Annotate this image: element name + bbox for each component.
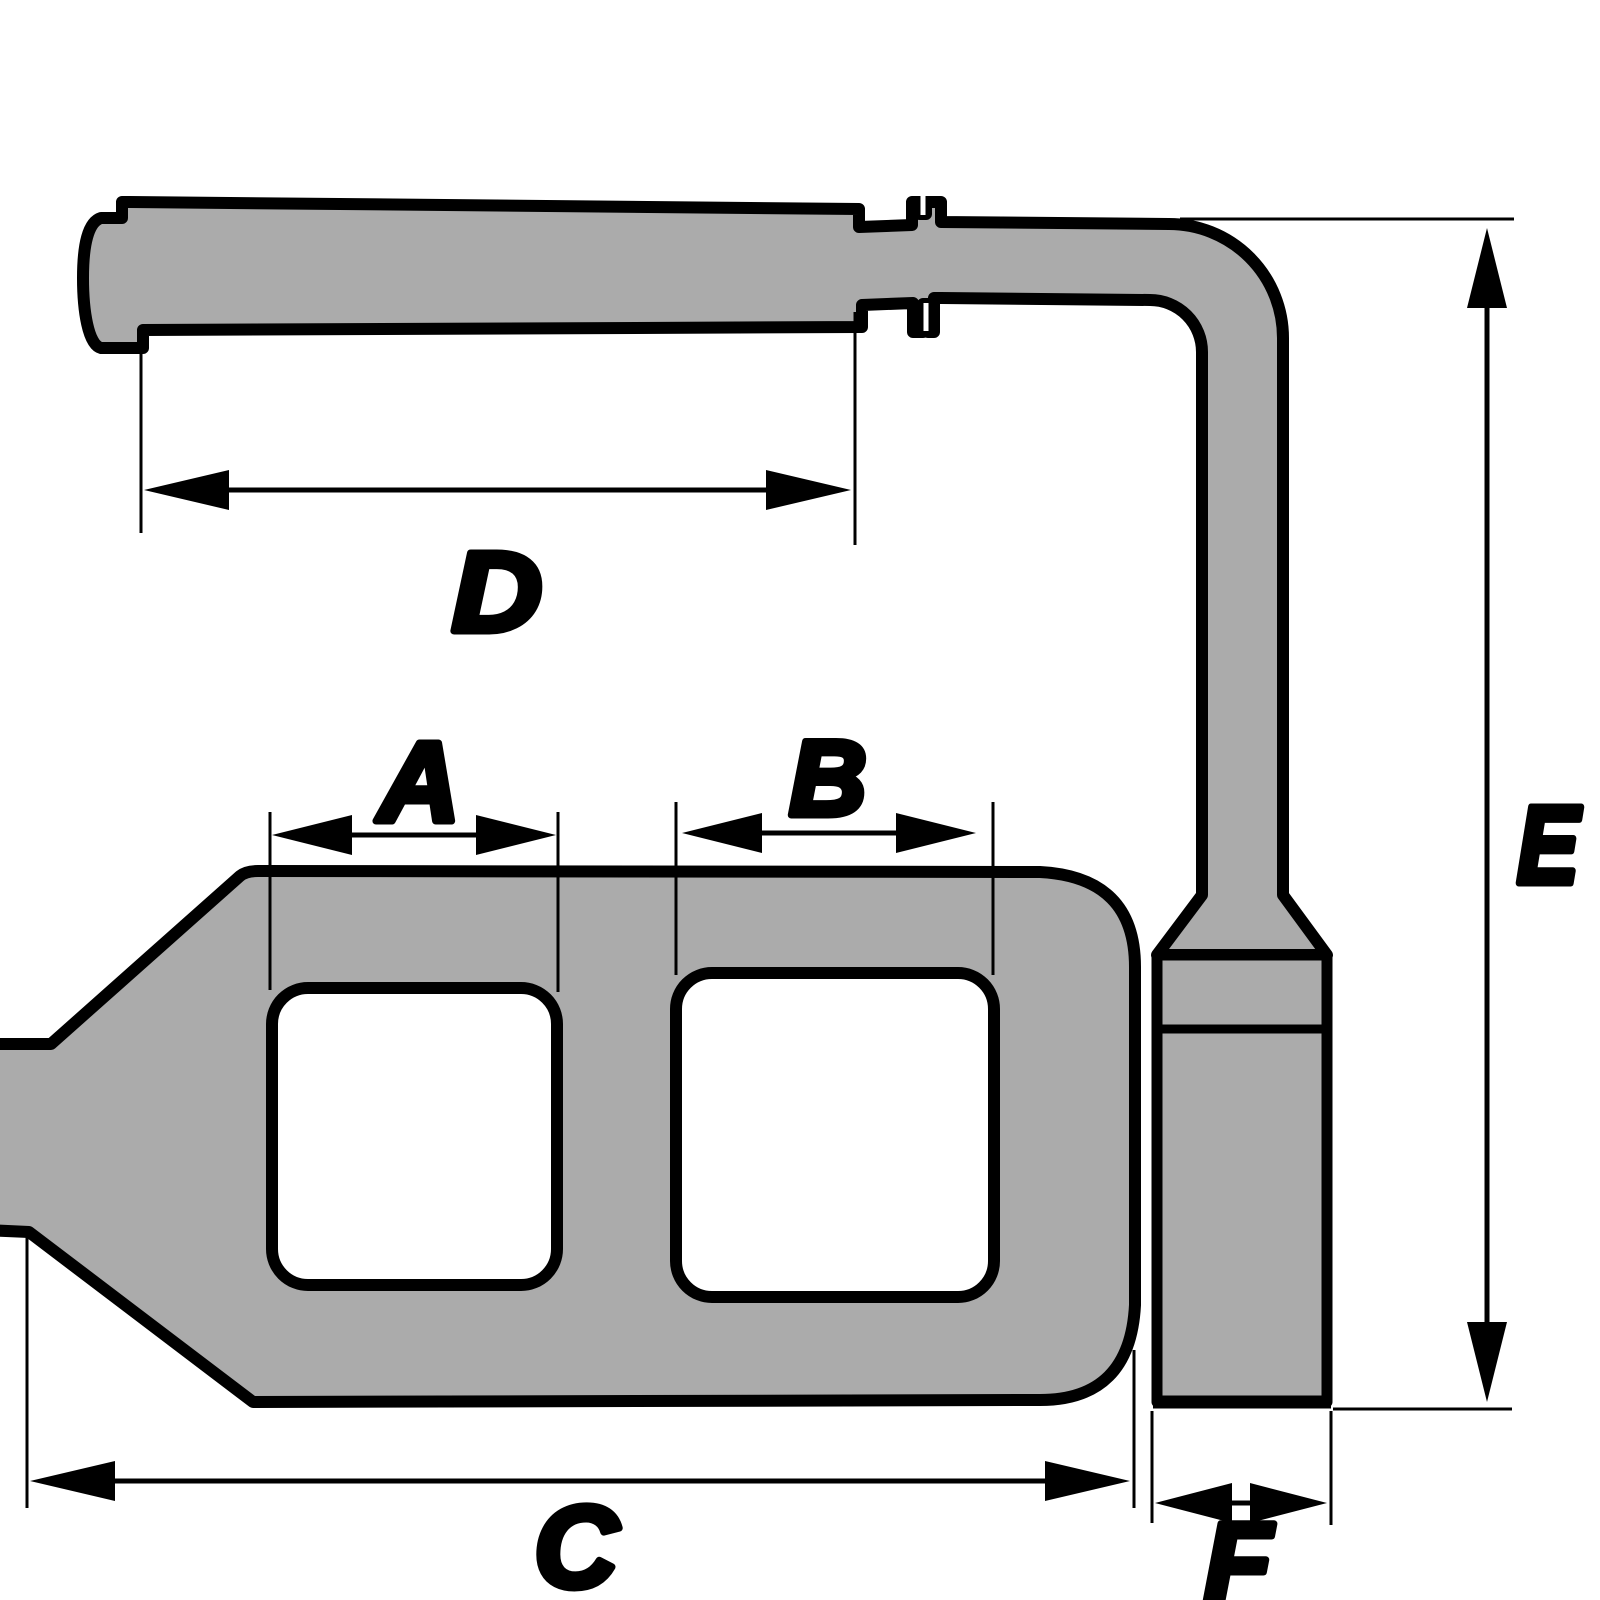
svg-text:D: D <box>452 529 542 655</box>
svg-text:A: A <box>375 719 460 845</box>
svg-text:C: C <box>534 1482 620 1600</box>
svg-text:E: E <box>1517 784 1582 907</box>
svg-text:F: F <box>1204 1501 1274 1600</box>
svg-text:B: B <box>789 718 866 838</box>
